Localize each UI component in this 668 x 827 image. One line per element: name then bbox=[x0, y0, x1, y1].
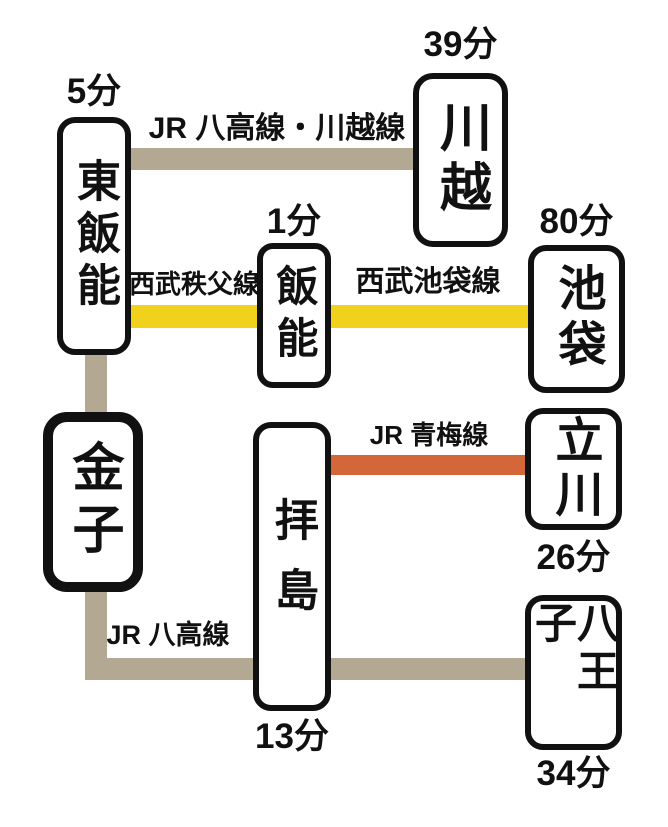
station-name-haijima: 拝島 bbox=[270, 497, 314, 637]
station-tachikawa: 立川 bbox=[525, 408, 622, 530]
line-label-seibu-chichibu: 西武秩父線 bbox=[129, 271, 259, 297]
station-kawagoe: 川越 bbox=[413, 73, 508, 247]
line-label-jr-hachiko: JR 八高線 bbox=[106, 622, 229, 649]
line-jr-ome bbox=[300, 455, 560, 475]
time-tachikawa: 26分 bbox=[525, 540, 622, 575]
line-label-jr-ome: JR 青梅線 bbox=[370, 422, 488, 448]
station-name-ikebukuro: 池袋 bbox=[553, 263, 601, 375]
station-kaneko-origin: 金子 bbox=[43, 412, 143, 592]
station-haijima: 拝島 bbox=[253, 422, 331, 711]
route-diagram: 東飯能 川越 飯能 池袋 金子 拝島 立川 八王子 5分 39分 1分 80分 … bbox=[0, 0, 668, 827]
line-label-seibu-ikebukuro: 西武池袋線 bbox=[355, 268, 500, 297]
station-name-tachikawa: 立川 bbox=[550, 415, 598, 523]
time-hachioji: 34分 bbox=[525, 756, 622, 791]
station-name-higashi-hanno: 東飯能 bbox=[72, 158, 116, 314]
line-jr-hachiko-kawagoe bbox=[110, 148, 435, 170]
station-name-kaneko: 金子 bbox=[67, 440, 119, 564]
time-ikebukuro: 80分 bbox=[528, 204, 625, 239]
station-name-kawagoe: 川越 bbox=[435, 100, 487, 220]
station-hanno: 飯能 bbox=[257, 243, 331, 388]
station-name-hanno: 飯能 bbox=[273, 264, 315, 368]
time-hanno: 1分 bbox=[257, 204, 331, 239]
time-higashi-hanno: 5分 bbox=[57, 74, 131, 109]
line-label-jr-hachiko-kawagoe: JR 八高線・川越線 bbox=[149, 114, 406, 144]
time-haijima: 13分 bbox=[253, 719, 331, 754]
station-ikebukuro: 池袋 bbox=[528, 245, 625, 393]
station-hachioji: 八王子 bbox=[525, 595, 622, 750]
time-kawagoe: 39分 bbox=[413, 27, 508, 62]
station-higashi-hanno: 東飯能 bbox=[57, 117, 131, 355]
station-name-hachioji: 八王子 bbox=[532, 601, 616, 744]
